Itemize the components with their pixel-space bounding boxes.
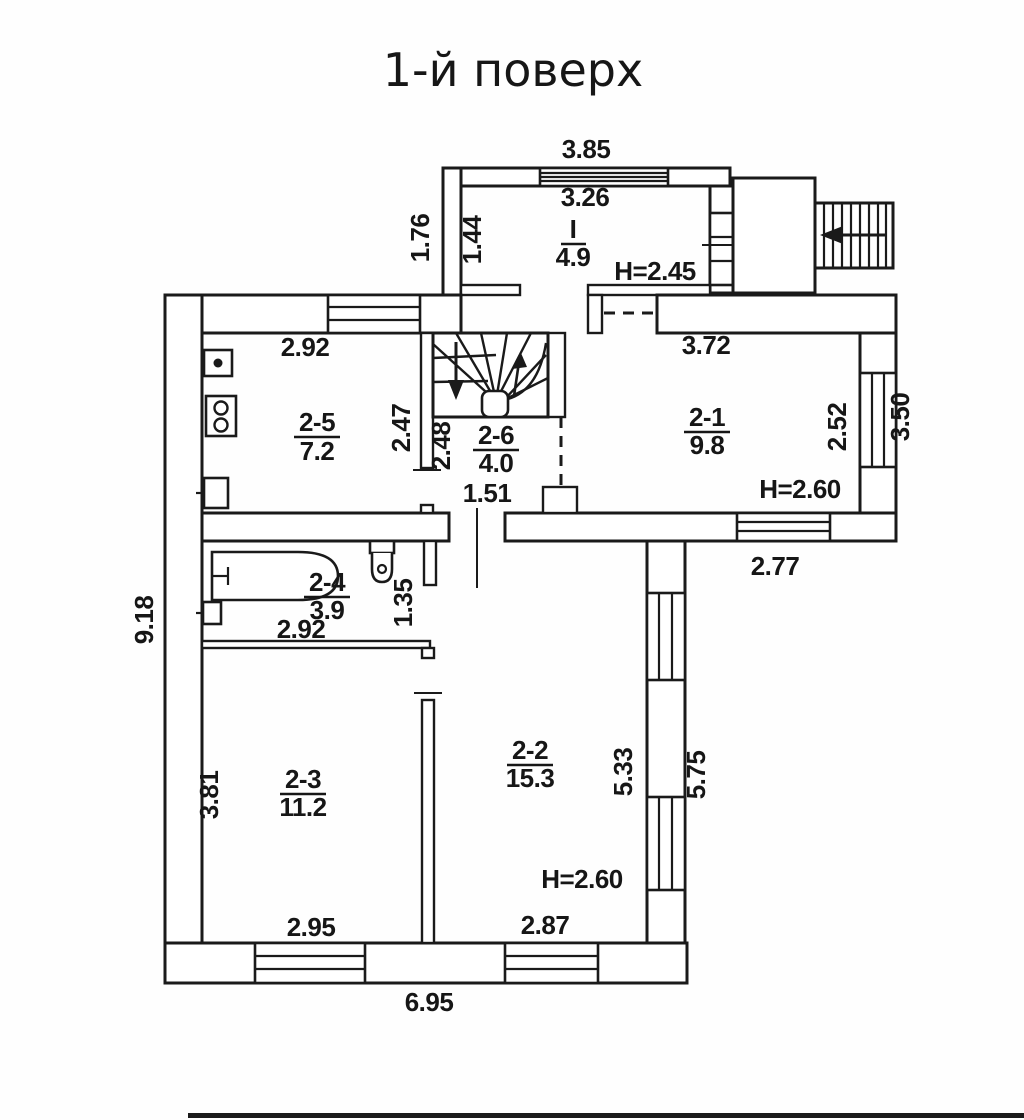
- dim-r21-bottom: 2.77: [751, 551, 800, 581]
- dim-top-inner: 3.26: [561, 182, 610, 212]
- dim-entry-depth-outer: 1.76: [405, 214, 435, 263]
- room-area-2-5: 7.2: [300, 436, 335, 466]
- dim-right-side-outer: 3.50: [885, 393, 915, 442]
- stove-icon: [206, 396, 236, 436]
- toilet-icon: [370, 541, 394, 582]
- room-area-entry: 4.9: [556, 242, 591, 272]
- height-entry: H=2.45: [614, 256, 696, 286]
- height-2-2: H=2.60: [541, 864, 623, 894]
- dim-hall-width: 1.51: [463, 478, 512, 508]
- wall-left-outer: [165, 295, 202, 983]
- dim-top-outer: 3.85: [562, 134, 611, 164]
- dim-r21-width: 3.72: [682, 330, 731, 360]
- room-label-2-3: 2-3: [285, 764, 321, 794]
- dim-kitchen-width: 2.92: [281, 332, 330, 362]
- wall-pilaster: [543, 487, 577, 513]
- dim-left-outer: 9.18: [129, 596, 159, 645]
- dim-stair-depth: 2.48: [426, 422, 456, 471]
- floor-plan-drawing: 1-й поверх 3.85 3.26 1.76 1.44 I 4.9 H=2…: [0, 0, 1024, 1120]
- dim-r22-depth-inner: 5.33: [608, 748, 638, 797]
- dim-r22-width: 2.87: [521, 910, 570, 940]
- dim-bottom-outer: 6.95: [405, 987, 454, 1017]
- room-label-entry: I: [570, 214, 577, 244]
- room-area-2-1: 9.8: [690, 430, 725, 460]
- window-entry-right: [710, 213, 733, 285]
- room-label-2-2: 2-2: [512, 735, 548, 765]
- dim-r22-depth-outer: 5.75: [681, 751, 711, 800]
- dim-kitchen-depth: 2.47: [386, 404, 416, 453]
- porch-outline: [733, 178, 815, 293]
- window-room22-bottom: [505, 943, 598, 983]
- wall-mid-left: [202, 513, 449, 541]
- spiral-staircase-icon: [433, 333, 548, 417]
- bathroom-fixtures: [196, 541, 394, 624]
- wall-stub: [588, 295, 602, 333]
- dim-bath-width: 2.92: [277, 614, 326, 644]
- room-label-2-5: 2-5: [299, 407, 335, 437]
- wall-bath-right: [424, 541, 436, 585]
- dim-r23-depth: 3.81: [194, 771, 224, 820]
- page-title: 1-й поверх: [383, 43, 643, 97]
- scan-edge: [188, 1113, 1024, 1118]
- room-area-2-3: 11.2: [279, 792, 326, 822]
- window-room22-right-lower: [647, 797, 685, 890]
- entrance-stairs-icon: [815, 203, 893, 268]
- wall-stair-right: [548, 333, 565, 417]
- room-label-2-4: 2-4: [309, 567, 346, 597]
- wall-bottom-outer: [165, 943, 687, 983]
- window-room23-bottom: [255, 943, 365, 983]
- wall-entry-bottom-left: [461, 285, 520, 295]
- room-label-2-6: 2-6: [478, 420, 514, 450]
- wall-mid-right: [505, 513, 896, 541]
- window-room21-bottom: [737, 513, 830, 541]
- floor-plan-page: 1-й поверх 3.85 3.26 1.76 1.44 I 4.9 H=2…: [0, 0, 1024, 1120]
- wall-23-22-top: [422, 648, 434, 658]
- height-2-1: H=2.60: [759, 474, 841, 504]
- dim-entry-depth-inner: 1.44: [457, 215, 487, 265]
- wall-kitchen-stair-jamb: [421, 505, 433, 513]
- window-room22-right-upper: [647, 593, 685, 680]
- dim-bath-side: 1.35: [388, 579, 418, 628]
- dim-r21-window: 2.52: [822, 403, 852, 452]
- window-kitchen-top: [328, 295, 420, 333]
- sink-icon: [204, 350, 232, 376]
- room-area-2-2: 15.3: [506, 763, 555, 793]
- dim-r23-width: 2.95: [287, 912, 336, 942]
- room-area-2-6: 4.0: [479, 448, 514, 478]
- wall-top-room21: [657, 295, 896, 333]
- wall-23-22: [422, 700, 434, 943]
- room-label-2-1: 2-1: [689, 402, 725, 432]
